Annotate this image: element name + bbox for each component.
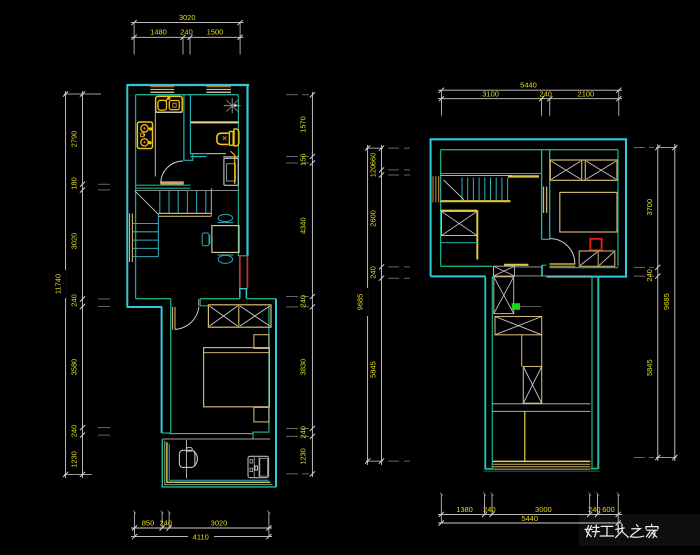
- svg-text:1230: 1230: [299, 448, 308, 465]
- svg-text:2790: 2790: [70, 131, 79, 148]
- svg-text:5845: 5845: [369, 361, 378, 378]
- svg-text:660: 660: [369, 153, 378, 166]
- svg-text:240: 240: [70, 294, 79, 307]
- svg-text:2100: 2100: [578, 89, 595, 98]
- svg-text:3830: 3830: [299, 359, 308, 376]
- svg-text:3020: 3020: [70, 233, 79, 250]
- svg-text:120: 120: [369, 165, 378, 178]
- svg-text:3700: 3700: [645, 199, 654, 216]
- svg-text:180: 180: [70, 177, 79, 190]
- svg-text:3100: 3100: [482, 89, 499, 98]
- svg-text:1230: 1230: [70, 451, 79, 468]
- svg-text:600: 600: [602, 505, 615, 514]
- svg-text:11740: 11740: [54, 274, 63, 294]
- svg-text:3580: 3580: [70, 359, 79, 376]
- svg-text:240: 240: [369, 266, 378, 279]
- svg-text:5440: 5440: [521, 514, 538, 523]
- svg-text:9685: 9685: [662, 293, 671, 310]
- svg-text:1570: 1570: [299, 116, 308, 133]
- svg-text:2600: 2600: [369, 210, 378, 227]
- svg-text:240: 240: [299, 295, 308, 308]
- svg-text:3020: 3020: [211, 518, 228, 527]
- svg-text:9685: 9685: [356, 294, 365, 311]
- svg-text:1380: 1380: [456, 505, 473, 514]
- svg-text:850: 850: [142, 518, 155, 527]
- svg-text:1480: 1480: [150, 28, 167, 37]
- svg-text:150: 150: [299, 153, 308, 166]
- svg-text:240: 240: [588, 505, 601, 514]
- svg-text:240: 240: [70, 425, 79, 438]
- svg-text:240: 240: [160, 518, 173, 527]
- svg-text:4340: 4340: [299, 217, 308, 234]
- svg-text:240: 240: [645, 269, 654, 282]
- svg-text:3020: 3020: [179, 13, 196, 22]
- svg-text:3000: 3000: [535, 505, 552, 514]
- svg-text:5440: 5440: [520, 81, 537, 90]
- svg-text:240: 240: [180, 28, 193, 37]
- svg-text:5845: 5845: [645, 359, 654, 376]
- svg-text:240: 240: [299, 426, 308, 439]
- svg-text:1500: 1500: [207, 28, 224, 37]
- svg-text:240: 240: [539, 89, 552, 98]
- svg-text:240: 240: [483, 505, 496, 514]
- svg-text:4110: 4110: [193, 533, 209, 542]
